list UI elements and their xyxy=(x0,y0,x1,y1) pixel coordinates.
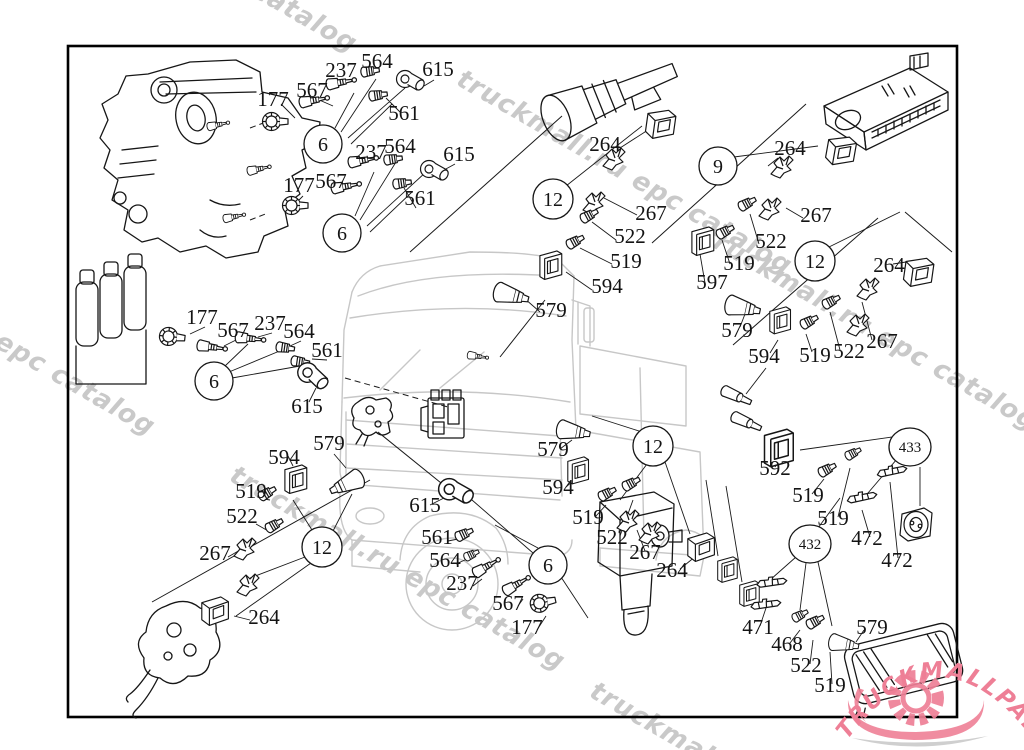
part-number-label: 564 xyxy=(361,49,393,73)
part-glyph xyxy=(295,361,334,393)
part-number-label: 579 xyxy=(537,437,569,461)
part-glyph xyxy=(540,251,562,280)
part-number-label: 519 xyxy=(792,483,824,507)
part-number-label: 264 xyxy=(873,253,905,277)
svg-text:432: 432 xyxy=(799,537,822,553)
part-number-label: 267 xyxy=(199,541,231,565)
part-glyph xyxy=(275,341,295,353)
callout-balloon: 433 xyxy=(889,428,931,466)
svg-text:12: 12 xyxy=(643,436,663,458)
part-number-label: 519 xyxy=(610,249,642,273)
part-glyph xyxy=(529,591,558,614)
part-glyph xyxy=(825,134,858,168)
part-glyph xyxy=(246,162,272,176)
callout-balloon: 432 xyxy=(789,525,831,563)
part-number-label: 615 xyxy=(422,57,454,81)
part-glyph xyxy=(621,475,642,493)
part-number-label: 237 xyxy=(325,58,357,82)
part-glyph xyxy=(159,327,186,348)
part-glyph xyxy=(565,233,586,251)
part-number-label: 561 xyxy=(311,338,343,362)
part-glyph xyxy=(737,195,758,213)
part-number-label: 561 xyxy=(404,186,436,210)
part-glyph xyxy=(692,227,714,256)
part-glyph xyxy=(467,351,489,362)
callout-balloon: 9 xyxy=(699,147,737,185)
part-number-label: 522 xyxy=(226,504,258,528)
part-number-label: 579 xyxy=(721,318,753,342)
part-number-label: 567 xyxy=(492,591,524,615)
part-glyph xyxy=(285,465,307,494)
part-number-label: 579 xyxy=(535,298,567,322)
part-number-label: 522 xyxy=(596,525,628,549)
part-glyph xyxy=(844,445,863,461)
part-glyph xyxy=(491,281,530,309)
part-number-label: 564 xyxy=(384,134,416,158)
callout-balloon: 12 xyxy=(533,179,573,219)
part-number-label: 264 xyxy=(248,605,280,629)
part-number-label: 522 xyxy=(755,229,787,253)
svg-text:6: 6 xyxy=(543,555,553,577)
part-glyph xyxy=(237,574,259,596)
part-glyph xyxy=(799,313,820,331)
part-number-label: 264 xyxy=(774,136,806,160)
part-number-label: 567 xyxy=(217,318,249,342)
part-number-label: 594 xyxy=(748,344,780,368)
svg-text:9: 9 xyxy=(713,156,723,178)
part-glyph xyxy=(846,488,877,505)
part-number-label: 561 xyxy=(421,525,453,549)
part-glyph xyxy=(756,574,787,590)
part-number-label: 177 xyxy=(257,87,289,111)
part-number-label: 237 xyxy=(355,140,387,164)
part-glyph xyxy=(723,294,762,321)
part-glyph xyxy=(759,198,781,220)
callout-balloon: 12 xyxy=(302,527,342,567)
callout-balloon: 6 xyxy=(529,546,567,584)
part-number-label: 567 xyxy=(315,169,347,193)
watermark-text: truckmall.ru epc catalog xyxy=(225,460,571,677)
parts-diagram-svg: truckmall.ru epc catalog truckmall.ru ep… xyxy=(0,0,1024,750)
svg-text:12: 12 xyxy=(312,537,332,559)
part-number-label: 519 xyxy=(799,343,831,367)
part-number-label: 264 xyxy=(656,558,688,582)
part-number-label: 579 xyxy=(313,431,345,455)
part-number-label: 615 xyxy=(409,493,441,517)
part-glyph xyxy=(817,461,838,479)
svg-text:6: 6 xyxy=(318,134,328,156)
svg-text:12: 12 xyxy=(805,251,825,273)
part-number-label: 267 xyxy=(866,329,898,353)
part-number-label: 519 xyxy=(817,506,849,530)
part-number-label: 594 xyxy=(542,475,574,499)
fuse-box-drawing xyxy=(421,390,464,438)
callout-balloon: 6 xyxy=(195,362,233,400)
svg-text:12: 12 xyxy=(543,189,563,211)
epc-diagram-page: truckmall.ru epc catalog truckmall.ru ep… xyxy=(0,0,1024,750)
ignition-coil-drawing xyxy=(76,254,146,384)
part-number-label: 615 xyxy=(443,142,475,166)
control-unit-drawing xyxy=(824,53,948,150)
part-glyph xyxy=(264,516,285,534)
part-glyph xyxy=(805,613,826,631)
part-glyph xyxy=(326,467,367,500)
part-glyph xyxy=(234,538,256,560)
part-glyph xyxy=(222,210,246,223)
part-number-label: 267 xyxy=(635,201,667,225)
part-number-label: 564 xyxy=(429,548,461,572)
svg-text:6: 6 xyxy=(209,371,219,393)
callout-balloon: 12 xyxy=(795,241,835,281)
part-number-label: 267 xyxy=(800,203,832,227)
part-number-label: 472 xyxy=(851,526,883,550)
part-number-label: 519 xyxy=(723,251,755,275)
part-number-label: 471 xyxy=(742,615,774,639)
part-number-label: 597 xyxy=(696,270,728,294)
callout-balloon: 6 xyxy=(304,125,342,163)
part-number-label: 177 xyxy=(283,173,315,197)
part-glyph xyxy=(770,307,791,334)
part-glyph xyxy=(857,278,879,300)
watermark-text: truckmall.ru epc catalog xyxy=(0,225,161,442)
part-number-label: 519 xyxy=(235,479,267,503)
part-glyph xyxy=(718,557,738,583)
part-glyph xyxy=(283,197,309,215)
part-number-label: 592 xyxy=(759,456,791,480)
part-number-label: 594 xyxy=(268,445,300,469)
part-glyph xyxy=(645,108,677,142)
part-number-label: 472 xyxy=(881,548,913,572)
part-glyph xyxy=(202,597,229,626)
svg-text:433: 433 xyxy=(899,440,922,456)
part-glyph xyxy=(900,508,932,541)
callout-balloon: 12 xyxy=(633,426,673,466)
part-glyph xyxy=(368,89,388,101)
part-number-label: 237 xyxy=(446,571,478,595)
part-glyph xyxy=(206,118,230,131)
part-number-label: 561 xyxy=(388,101,420,125)
part-glyph xyxy=(827,633,860,655)
part-number-label: 177 xyxy=(511,615,543,639)
leader-lines xyxy=(190,79,920,684)
part-number-label: 237 xyxy=(254,311,286,335)
part-number-label: 522 xyxy=(833,339,865,363)
part-number-label: 579 xyxy=(856,615,888,639)
part-number-label: 594 xyxy=(591,274,623,298)
part-number-label: 615 xyxy=(291,394,323,418)
part-number-label: 177 xyxy=(186,305,218,329)
part-number-label: 264 xyxy=(589,132,621,156)
part-glyph xyxy=(439,479,476,505)
part-number-label: 567 xyxy=(296,78,328,102)
part-number-label: 519 xyxy=(814,673,846,697)
part-glyph xyxy=(719,384,753,407)
part-glyph xyxy=(688,533,715,562)
part-number-label: 522 xyxy=(614,224,646,248)
svg-text:6: 6 xyxy=(337,223,347,245)
part-glyph xyxy=(729,410,763,433)
part-glyph xyxy=(263,113,289,131)
part-glyph xyxy=(903,256,935,290)
callout-balloon: 6 xyxy=(323,214,361,252)
